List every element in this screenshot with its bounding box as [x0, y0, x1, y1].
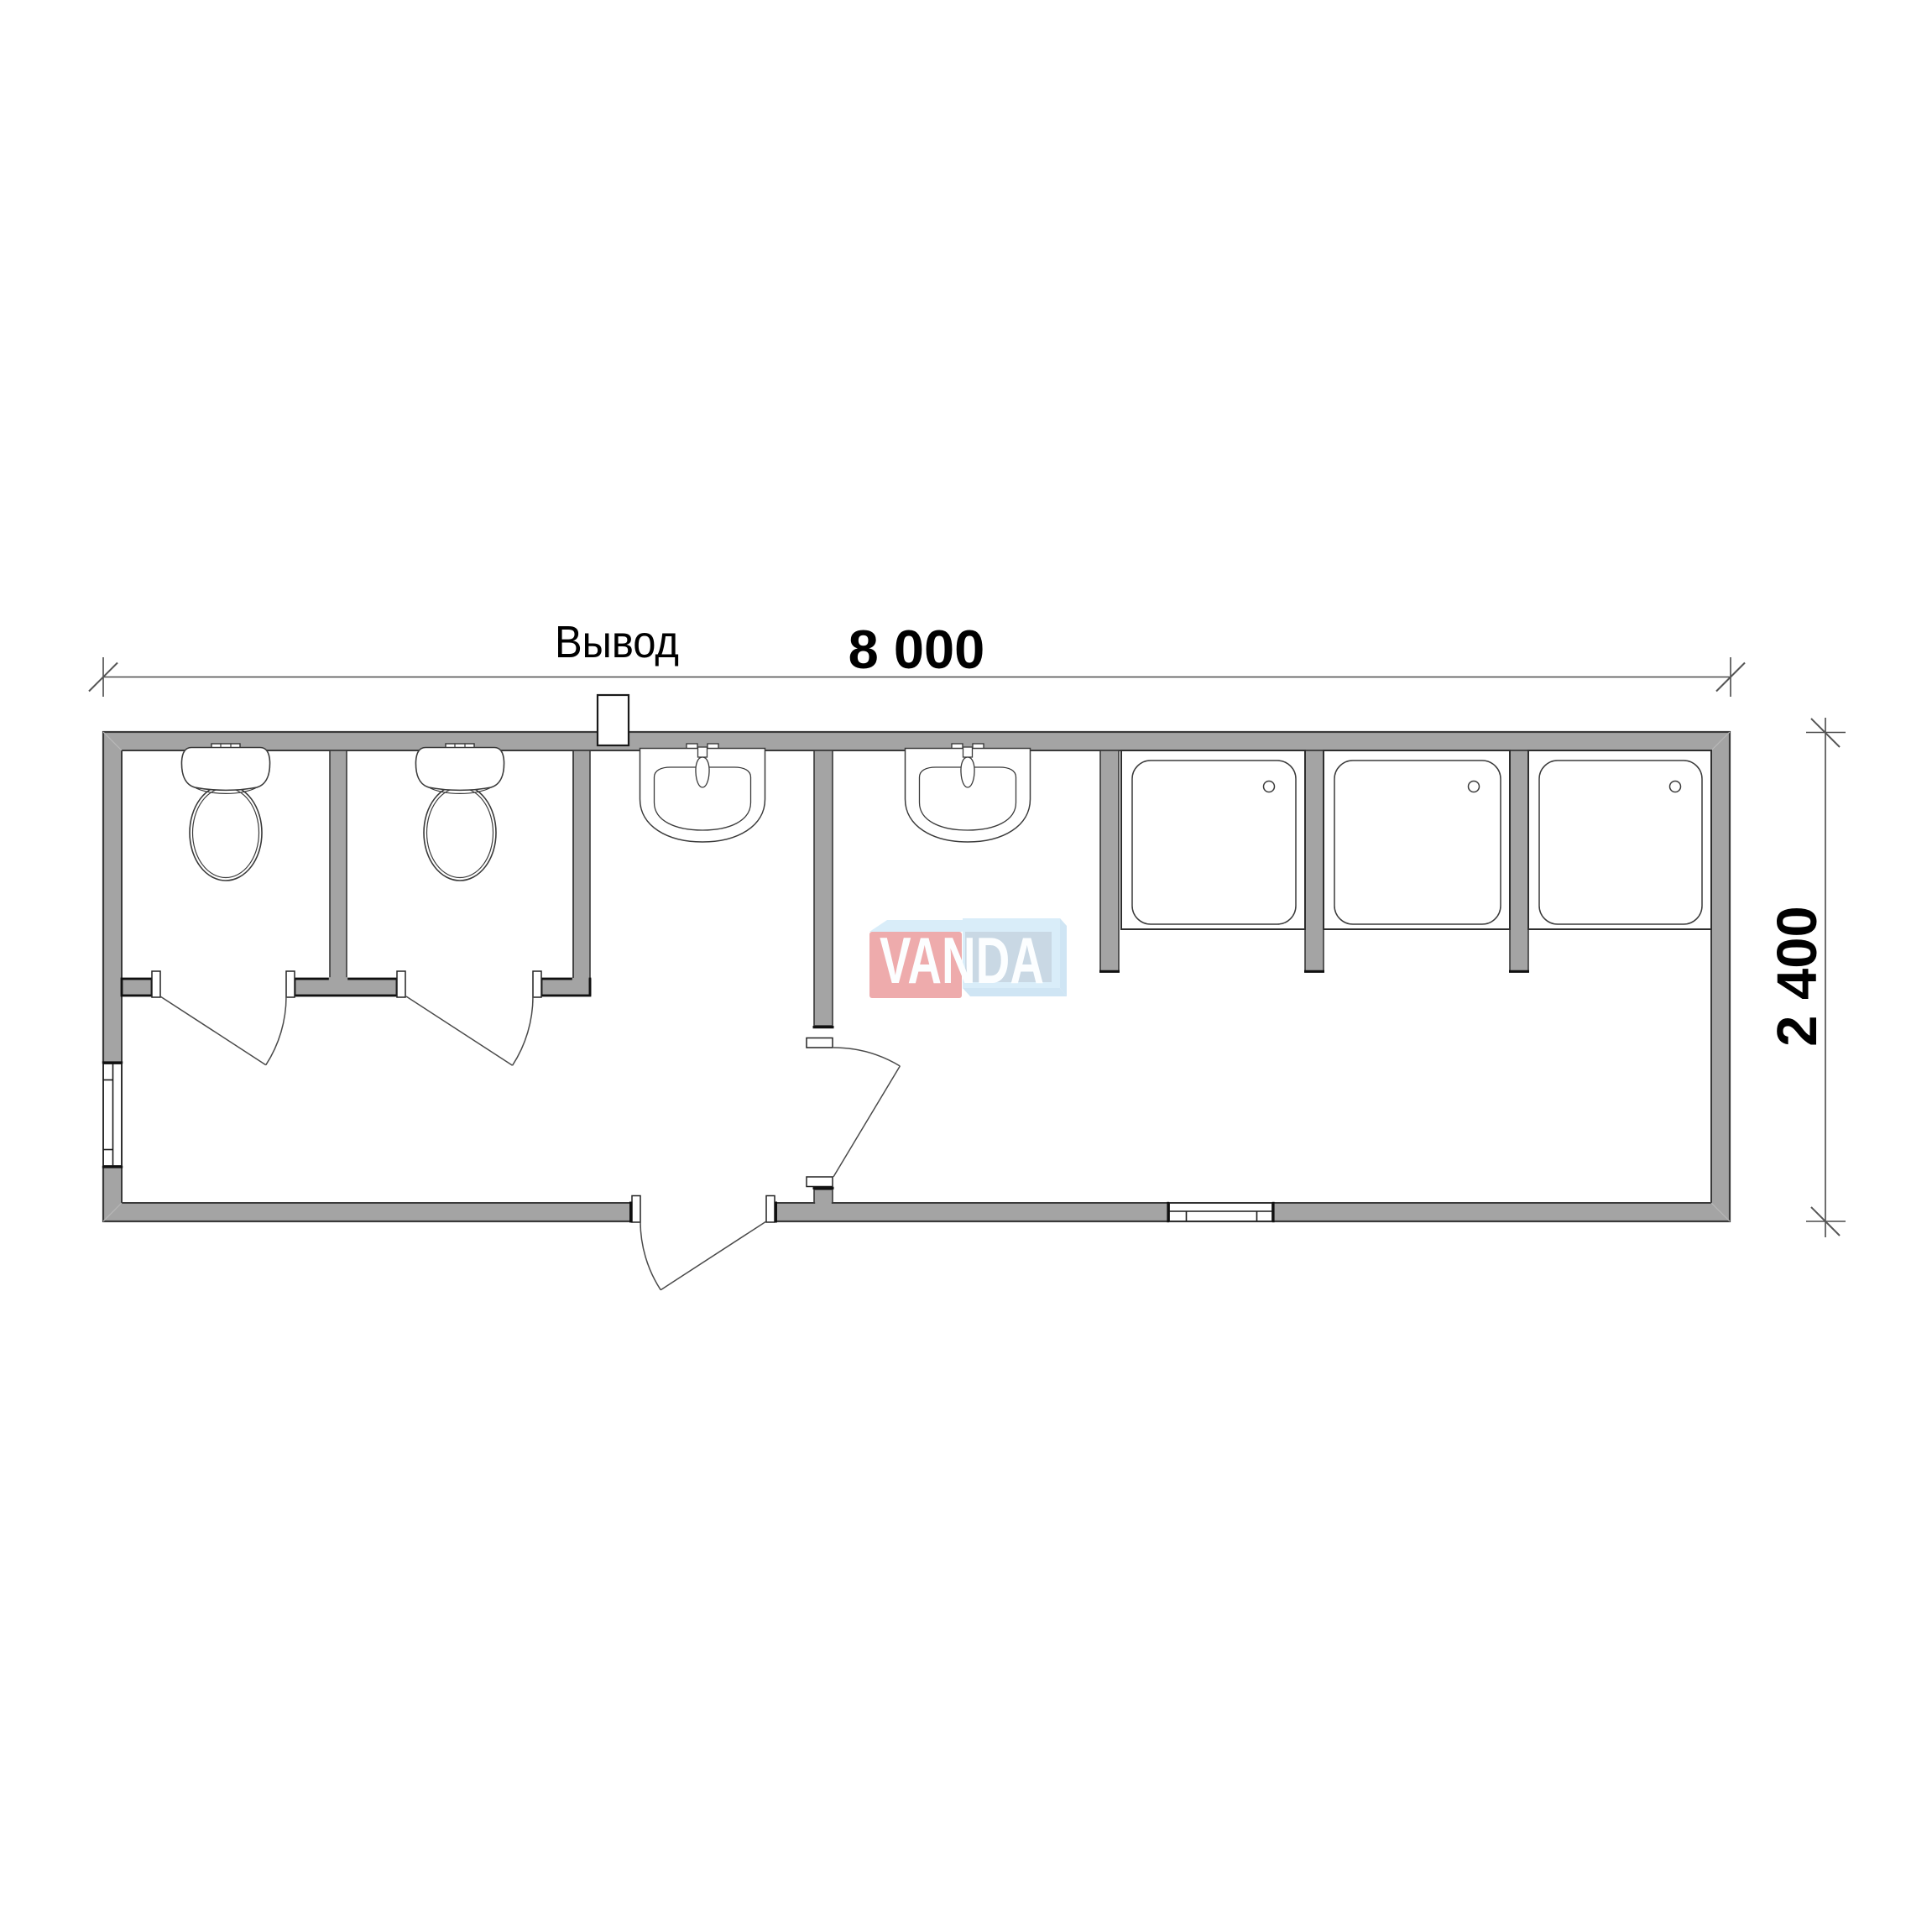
svg-text:Вывод: Вывод	[555, 617, 679, 667]
svg-text:2 400: 2 400	[1766, 906, 1829, 1047]
svg-text:8 000: 8 000	[849, 619, 985, 680]
svg-text:VANDA: VANDA	[880, 923, 1044, 997]
